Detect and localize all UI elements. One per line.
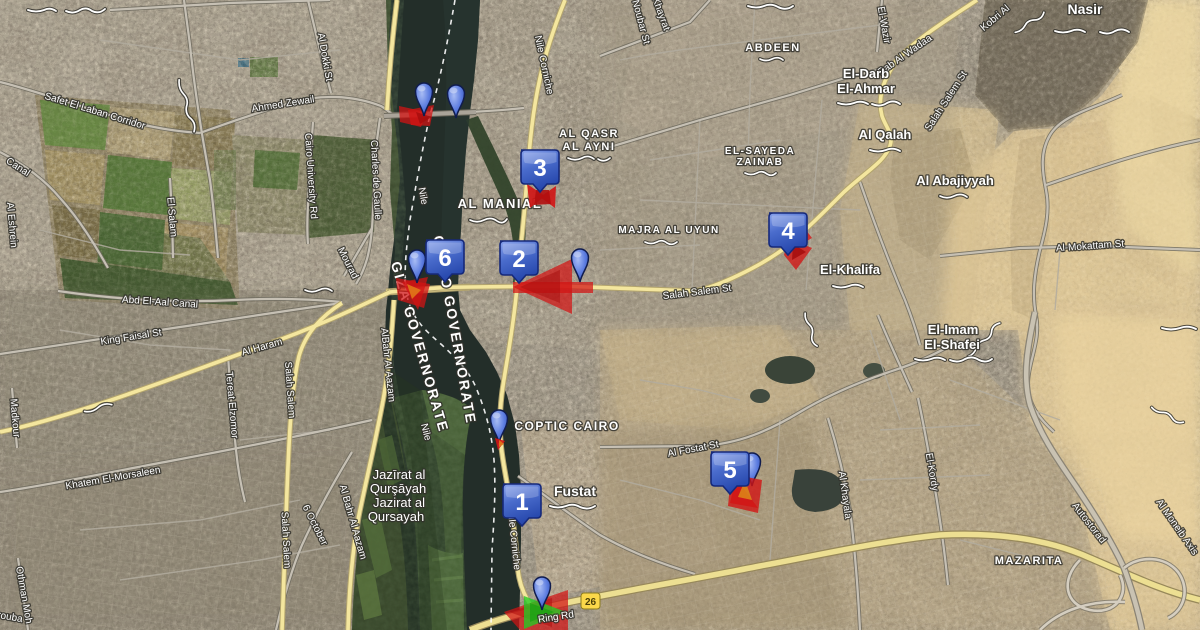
- svg-text:Al Qalah: Al Qalah: [859, 127, 912, 142]
- svg-text:COPTIC CAIRO: COPTIC CAIRO: [514, 419, 619, 433]
- svg-text:5: 5: [723, 457, 736, 484]
- svg-text:2: 2: [512, 246, 525, 273]
- svg-text:AL AYNI: AL AYNI: [563, 141, 616, 153]
- svg-text:Nasir: Nasir: [1067, 1, 1103, 17]
- svg-text:1: 1: [515, 489, 528, 516]
- svg-text:MAZARITA: MAZARITA: [995, 555, 1064, 567]
- svg-text:ZAINAB: ZAINAB: [737, 157, 784, 168]
- svg-text:El-Imam: El-Imam: [928, 322, 979, 337]
- svg-text:ABDEEN: ABDEEN: [745, 42, 800, 54]
- svg-text:26: 26: [585, 597, 597, 608]
- svg-text:Jazirat al: Jazirat al: [373, 495, 425, 510]
- svg-text:3: 3: [533, 155, 546, 182]
- svg-text:Qursayah: Qursayah: [368, 509, 424, 524]
- svg-text:Jazīrat al: Jazīrat al: [373, 467, 426, 482]
- svg-text:EL-SAYEDA: EL-SAYEDA: [725, 146, 795, 157]
- svg-text:Fustat: Fustat: [554, 483, 596, 499]
- svg-text:El-Shafei: El-Shafei: [924, 337, 980, 352]
- svg-text:El-Darb: El-Darb: [843, 66, 889, 81]
- svg-text:El-Khalifa: El-Khalifa: [820, 262, 881, 277]
- svg-text:6: 6: [438, 245, 451, 272]
- svg-text:Al Abajiyyah: Al Abajiyyah: [916, 173, 994, 188]
- svg-text:AL QASR: AL QASR: [559, 128, 619, 140]
- svg-text:4: 4: [781, 218, 795, 245]
- svg-text:MAJRA AL UYUN: MAJRA AL UYUN: [618, 225, 719, 236]
- svg-text:Qurşāyah: Qurşāyah: [370, 481, 426, 496]
- svg-text:El-Ahmar: El-Ahmar: [837, 81, 895, 96]
